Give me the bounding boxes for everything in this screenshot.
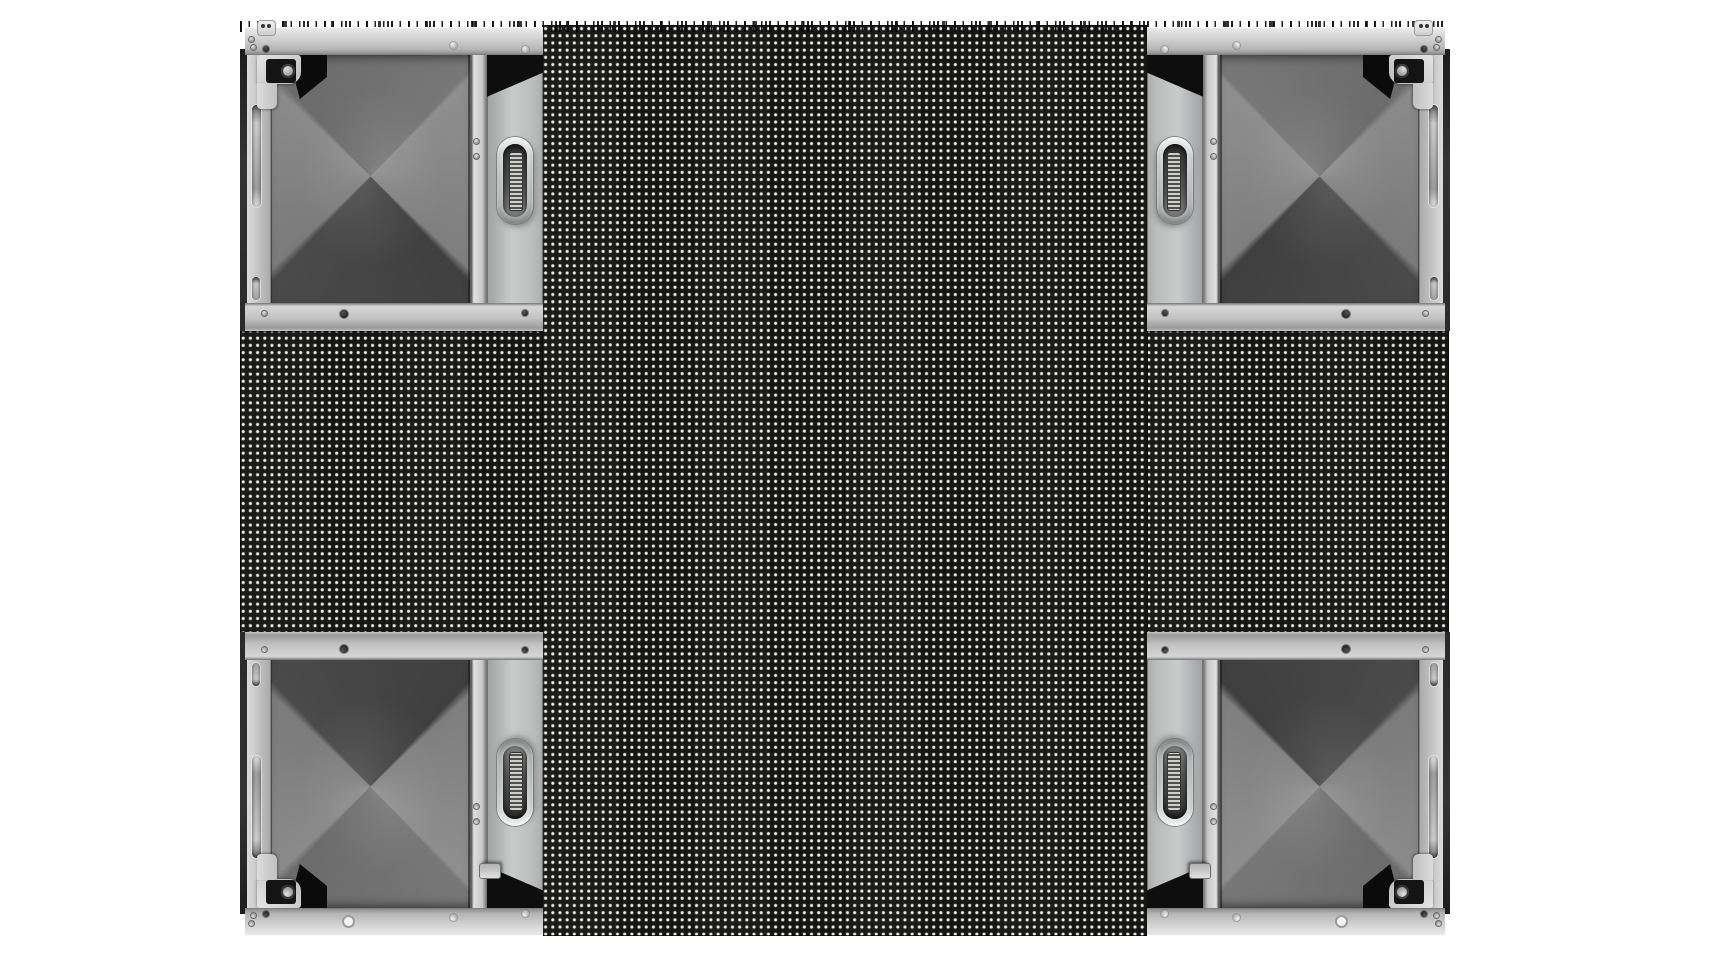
screw xyxy=(249,921,254,926)
pull-handle xyxy=(1157,137,1193,224)
handle-connector xyxy=(1167,752,1181,811)
handle-recess xyxy=(503,144,527,217)
screw xyxy=(1161,910,1168,917)
pull-handle xyxy=(1157,739,1193,826)
screw xyxy=(1161,46,1168,53)
screw xyxy=(1211,804,1216,809)
product-image xyxy=(0,0,1714,964)
top-rail xyxy=(1147,908,1445,936)
divider-bar xyxy=(1203,55,1220,303)
screw xyxy=(522,310,528,316)
vent-slot-short xyxy=(1430,663,1438,686)
led-band-vertical xyxy=(542,25,1148,936)
frame-interior xyxy=(1220,55,1419,303)
screw xyxy=(474,819,479,824)
rail-hole xyxy=(1337,917,1346,926)
screw xyxy=(1421,46,1427,52)
screw xyxy=(522,46,529,53)
handle-recess xyxy=(503,746,527,819)
screw xyxy=(1434,913,1439,918)
dark-side-edge xyxy=(1443,632,1450,914)
dark-side-edge xyxy=(240,632,247,914)
vent-slot-short xyxy=(1430,277,1438,300)
screw xyxy=(522,910,529,917)
screw xyxy=(249,37,254,42)
top-rail xyxy=(1147,27,1445,55)
corner-lock-foot xyxy=(1413,83,1433,109)
lock-hub xyxy=(1395,64,1409,78)
rail-hole xyxy=(344,917,353,926)
screw xyxy=(1436,37,1441,42)
bottom-rail xyxy=(1147,632,1445,660)
divider-bar xyxy=(470,55,487,303)
top-rail xyxy=(245,908,543,936)
cabinet-frame-bottom-left xyxy=(240,632,543,936)
cabinet-frame-bottom-right xyxy=(1147,632,1450,936)
handle-connector xyxy=(509,152,523,211)
screw xyxy=(340,310,348,318)
screw xyxy=(522,647,528,653)
vent-slot-short xyxy=(252,277,260,300)
vent-slot-long xyxy=(1429,105,1438,207)
lock-hub xyxy=(1395,885,1409,899)
screw xyxy=(474,139,479,144)
handle-connector xyxy=(509,752,523,811)
screw xyxy=(1233,42,1240,49)
top-tab xyxy=(1415,21,1432,35)
corner-lock-foot xyxy=(257,854,277,880)
screw xyxy=(263,911,269,917)
module-lock-tab xyxy=(480,864,500,878)
corner-lock-foot xyxy=(1413,854,1433,880)
frame-interior xyxy=(271,660,470,908)
lock-hub xyxy=(281,64,295,78)
screw xyxy=(1162,647,1168,653)
handle-connector xyxy=(1167,152,1181,211)
screw xyxy=(450,42,457,49)
screw xyxy=(1342,645,1350,653)
plate-shadow-notch xyxy=(487,55,543,99)
plate-shadow-notch xyxy=(1147,55,1203,99)
top-tab xyxy=(258,21,275,35)
vent-slot-long xyxy=(252,756,261,858)
screw xyxy=(1421,911,1427,917)
dark-side-edge xyxy=(1443,49,1450,331)
screw xyxy=(1434,45,1439,50)
screw xyxy=(1423,311,1428,316)
screw xyxy=(1233,914,1240,921)
screw xyxy=(340,645,348,653)
bottom-rail xyxy=(1147,303,1445,331)
bottom-rail xyxy=(245,303,543,331)
handle-recess xyxy=(1163,746,1187,819)
screw xyxy=(262,311,267,316)
module-lock-tab xyxy=(1190,864,1210,878)
bottom-rail xyxy=(245,632,543,660)
screw xyxy=(1162,310,1168,316)
screw xyxy=(251,913,256,918)
vent-slot-long xyxy=(1429,756,1438,858)
screw xyxy=(1342,310,1350,318)
screw xyxy=(262,647,267,652)
screw xyxy=(1436,921,1441,926)
screw xyxy=(1211,139,1216,144)
frame-interior xyxy=(271,55,470,303)
dark-side-edge xyxy=(240,49,247,331)
vent-slot-short xyxy=(252,663,260,686)
screw xyxy=(474,804,479,809)
screw xyxy=(1423,647,1428,652)
lock-hub xyxy=(281,885,295,899)
top-rail xyxy=(245,27,543,55)
frame-interior xyxy=(1220,660,1419,908)
screw xyxy=(1211,154,1216,159)
handle-recess xyxy=(1163,144,1187,217)
screw xyxy=(251,45,256,50)
pull-handle xyxy=(497,739,533,826)
corner-lock-foot xyxy=(257,83,277,109)
screw xyxy=(450,914,457,921)
vent-slot-long xyxy=(252,105,261,207)
screw xyxy=(474,154,479,159)
cabinet-frame-top-left xyxy=(240,27,543,331)
screw xyxy=(263,46,269,52)
cabinet-frame-top-right xyxy=(1147,27,1450,331)
pull-handle xyxy=(497,137,533,224)
screw xyxy=(1211,819,1216,824)
